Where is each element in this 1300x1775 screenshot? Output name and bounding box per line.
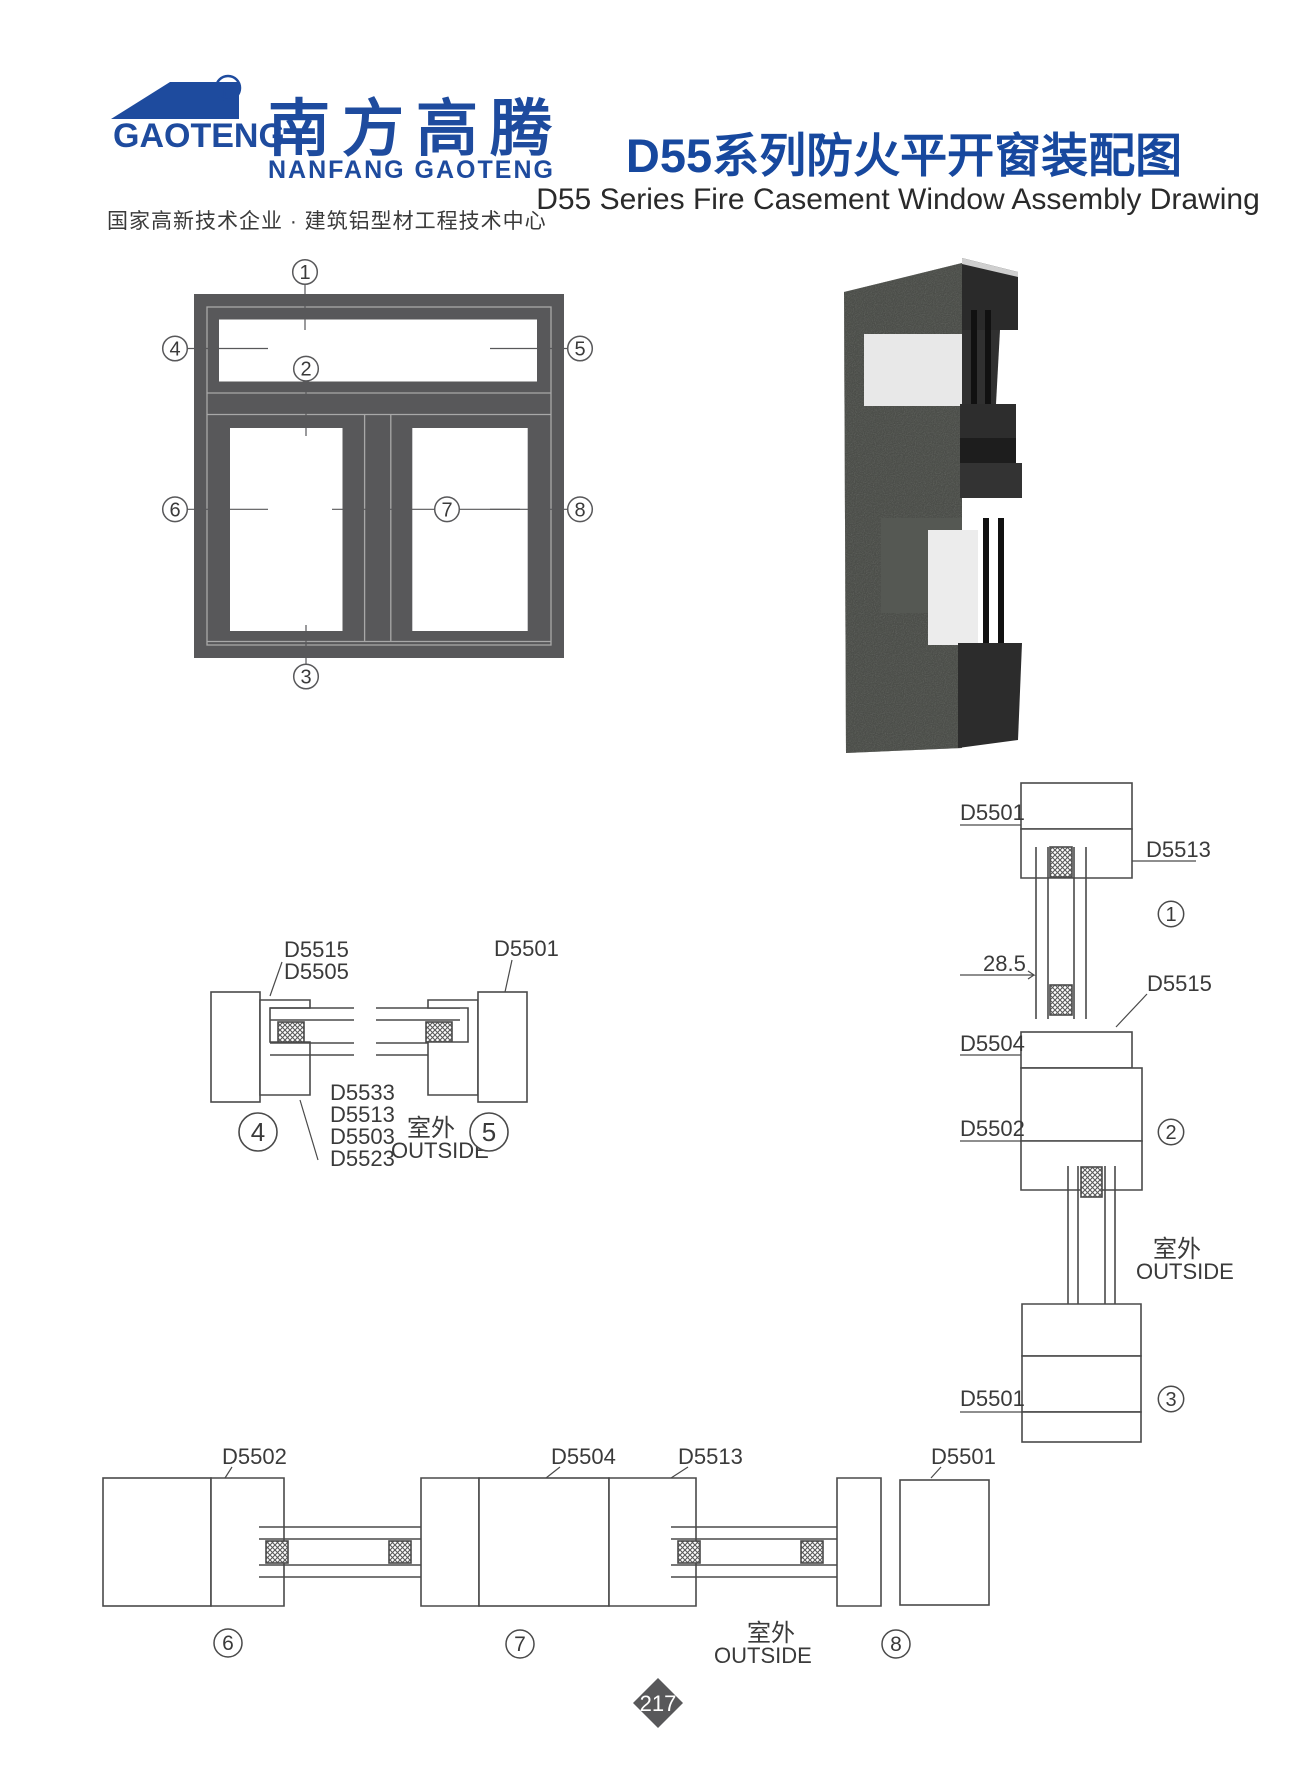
svg-text:D5513: D5513 <box>678 1444 743 1469</box>
svg-text:D5501: D5501 <box>494 936 559 961</box>
svg-text:3: 3 <box>300 667 311 689</box>
svg-text:6: 6 <box>169 499 180 521</box>
svg-text:南方高腾: 南方高腾 <box>268 95 564 164</box>
svg-text:2: 2 <box>300 359 311 381</box>
svg-text:4: 4 <box>169 339 180 361</box>
svg-text:D5504: D5504 <box>551 1444 616 1469</box>
svg-text:D5523: D5523 <box>330 1146 395 1171</box>
svg-text:OUTSIDE: OUTSIDE <box>714 1643 812 1668</box>
svg-text:D5502: D5502 <box>222 1444 287 1469</box>
svg-text:D5515: D5515 <box>1147 971 1212 996</box>
svg-text:OUTSIDE: OUTSIDE <box>1136 1259 1234 1284</box>
svg-text:7: 7 <box>514 1633 526 1656</box>
svg-text:6: 6 <box>222 1632 234 1655</box>
svg-text:4: 4 <box>251 1117 265 1147</box>
svg-text:2: 2 <box>1165 1122 1176 1144</box>
svg-text:D5501: D5501 <box>931 1444 996 1469</box>
svg-text:8: 8 <box>574 499 585 521</box>
svg-text:D5504: D5504 <box>960 1031 1025 1056</box>
svg-text:D5513: D5513 <box>1146 837 1211 862</box>
svg-text:5: 5 <box>574 339 585 361</box>
svg-text:7: 7 <box>441 499 452 521</box>
svg-text:5: 5 <box>482 1117 496 1147</box>
svg-text:217: 217 <box>640 1691 677 1716</box>
svg-text:D5501: D5501 <box>960 800 1025 825</box>
svg-text:8: 8 <box>890 1633 902 1656</box>
svg-text:GAOTENG: GAOTENG <box>113 117 285 155</box>
svg-text:28.5: 28.5 <box>983 951 1026 976</box>
svg-text:R: R <box>222 81 234 100</box>
svg-text:NANFANG GAOTENG: NANFANG GAOTENG <box>268 156 555 184</box>
svg-text:D55 Series Fire Casement Windo: D55 Series Fire Casement Window Assembly… <box>536 183 1260 216</box>
svg-text:1: 1 <box>299 262 310 284</box>
svg-text:D5505: D5505 <box>284 959 349 984</box>
svg-text:1: 1 <box>1165 904 1176 926</box>
svg-text:D55系列防火平开窗装配图: D55系列防火平开窗装配图 <box>626 129 1182 182</box>
svg-text:3: 3 <box>1165 1389 1176 1411</box>
svg-text:D5502: D5502 <box>960 1116 1025 1141</box>
svg-text:D5501: D5501 <box>960 1386 1025 1411</box>
svg-text:国家高新技术企业 · 建筑铝型材工程技术中心: 国家高新技术企业 · 建筑铝型材工程技术中心 <box>107 210 547 233</box>
